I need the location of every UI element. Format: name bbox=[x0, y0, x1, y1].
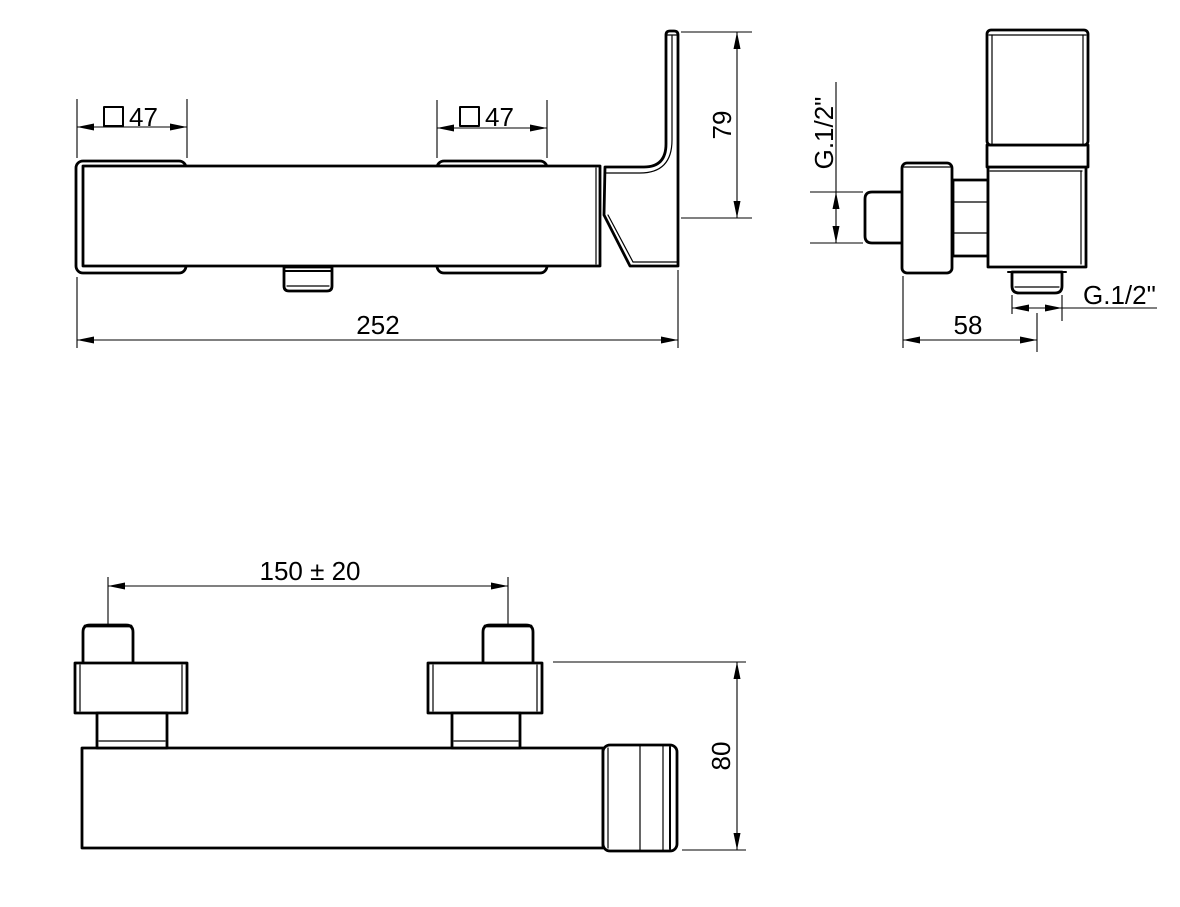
dim-front-square-left: 47 bbox=[77, 99, 187, 158]
dim-label-inlet-thread: G.1/2" bbox=[809, 97, 839, 170]
front-body bbox=[83, 166, 600, 266]
dim-label-body-depth: 80 bbox=[706, 742, 736, 771]
dim-front-handle-height: 79 bbox=[681, 32, 752, 218]
technical-drawing-canvas: 47 47 252 79 bbox=[0, 0, 1180, 907]
plan-right-flange bbox=[428, 663, 542, 713]
side-wall-flange bbox=[902, 163, 952, 273]
side-handle-lever bbox=[987, 30, 1088, 145]
technical-drawing-page: 47 47 252 79 bbox=[0, 0, 1180, 907]
dim-side-inlet-thread: G.1/2" bbox=[809, 82, 863, 243]
square-profile-symbol-icon bbox=[104, 107, 123, 126]
dim-label-depth: 58 bbox=[954, 310, 983, 340]
side-view: G.1/2" 58 G.1/2" bbox=[809, 30, 1157, 352]
front-lever-outline bbox=[604, 31, 678, 266]
plan-left-nipple bbox=[83, 625, 133, 663]
dim-label-handle-height: 79 bbox=[707, 111, 737, 140]
dim-plan-inlet-centres: 150 ± 20 bbox=[108, 556, 508, 625]
dim-label-square-right: 47 bbox=[485, 102, 514, 132]
side-outlet-port bbox=[1008, 272, 1066, 293]
plan-body bbox=[82, 748, 603, 848]
square-profile-symbol-icon bbox=[460, 107, 479, 126]
plan-view: 150 ± 20 80 bbox=[75, 556, 746, 851]
dim-label-square-left: 47 bbox=[129, 102, 158, 132]
dim-front-total-length: 252 bbox=[77, 270, 678, 348]
side-hex-nut bbox=[953, 180, 988, 256]
front-view: 47 47 252 79 bbox=[76, 31, 752, 348]
plan-left-seat bbox=[97, 713, 167, 748]
dim-label-inlet-centres: 150 ± 20 bbox=[259, 556, 360, 586]
side-wall-nipple bbox=[865, 192, 902, 243]
front-handle-lever bbox=[604, 31, 678, 266]
plan-handle-end-cap bbox=[603, 745, 677, 851]
plan-left-flange bbox=[75, 663, 187, 713]
side-lever-collar bbox=[987, 145, 1088, 167]
dim-label-total-length: 252 bbox=[356, 310, 399, 340]
plan-left-wall-connector bbox=[75, 625, 187, 748]
side-body bbox=[988, 167, 1086, 267]
front-outlet-port bbox=[284, 267, 332, 291]
dim-front-square-right: 47 bbox=[437, 100, 547, 158]
plan-right-wall-connector bbox=[428, 625, 542, 748]
plan-right-seat bbox=[452, 713, 520, 748]
dim-label-outlet-thread: G.1/2" bbox=[1083, 280, 1156, 310]
plan-right-nipple bbox=[483, 625, 533, 663]
